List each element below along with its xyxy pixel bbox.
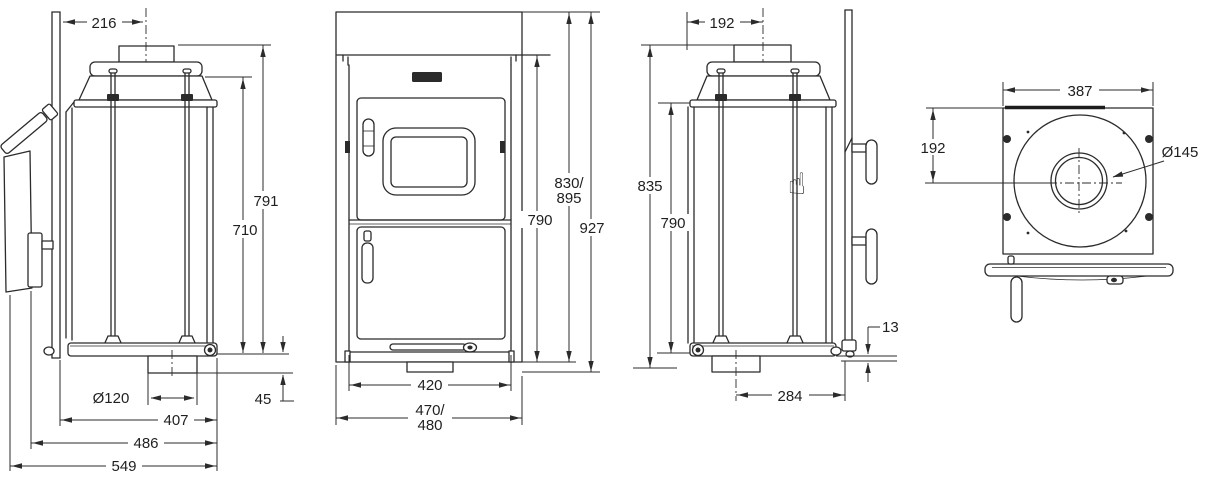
tie-rod: [712, 69, 730, 345]
top-view: 387 192: [918, 82, 1198, 322]
base-hook: [831, 347, 841, 355]
wall-panel: [842, 10, 856, 357]
dim-387: 387: [1003, 82, 1153, 106]
right-side-view: ☝: [631, 8, 899, 405]
flue-stub: [119, 46, 174, 62]
hand-cursor-icon: ☝: [788, 167, 806, 202]
door-handle-icon: [0, 103, 58, 154]
dim-420: 420: [349, 355, 511, 394]
tie-rod: [178, 69, 196, 345]
dim-o145: Ø145: [1113, 144, 1198, 177]
brand-logo: [412, 72, 442, 82]
latch-handle: [852, 140, 877, 284]
front-plate: [985, 256, 1173, 280]
dim-label: 407: [163, 412, 188, 429]
latch-icon: [1107, 276, 1123, 284]
dim-45: 45: [255, 336, 294, 408]
technical-drawing: 216 791 710 Ø120: [0, 0, 1205, 500]
drawing-canvas: 216 791 710 Ø120: [0, 0, 1205, 500]
dim-label: 790: [660, 215, 685, 232]
dim-label: 192: [920, 140, 945, 157]
dim-label: 927: [579, 220, 604, 237]
lower-door: [357, 227, 505, 339]
dim-192-top: 192: [918, 108, 1003, 183]
dim-label: 13: [882, 319, 899, 336]
dim-label: 45: [255, 391, 272, 408]
base-plate: [68, 343, 217, 356]
latch-handle: [28, 233, 53, 287]
dim-label: 480: [417, 417, 442, 434]
dim-790-side: 790: [654, 103, 691, 353]
dim-216: 216: [63, 13, 143, 32]
dim-label: Ø145: [1162, 144, 1199, 161]
dim-470-480: 470/ 480: [336, 365, 522, 434]
ledge: [74, 100, 217, 107]
tie-rod: [786, 69, 804, 345]
bolt-icon: [1003, 135, 1011, 143]
stove-body-side: [66, 102, 213, 343]
dim-192-side: 192: [687, 12, 763, 50]
pedestal: [407, 362, 453, 372]
dim-label: 284: [777, 388, 802, 405]
base-hook: [44, 347, 54, 355]
upper-door: [357, 98, 505, 220]
stove-body-side: [688, 107, 832, 343]
ledge: [690, 100, 836, 107]
dim-label: 486: [133, 435, 158, 452]
floor-outlet: [148, 356, 197, 373]
dim-label: 216: [91, 15, 116, 32]
bolt-icon: [1003, 213, 1011, 221]
dim-790-front: 790: [521, 55, 558, 362]
dim-label: 387: [1067, 83, 1092, 100]
dim-label: Ø120: [93, 390, 130, 407]
stove-body-top: [1003, 108, 1153, 254]
door-handle-icon: [1011, 277, 1022, 322]
ash-scraper: [390, 343, 477, 352]
dim-label: 420: [417, 377, 442, 394]
hinge-tab: [345, 141, 350, 153]
left-side-view: 216 791 710 Ø120: [0, 8, 294, 475]
dim-label: 710: [232, 222, 257, 239]
dim-o120: Ø120: [93, 373, 197, 407]
flue-stub: [734, 45, 791, 62]
dim-830-895: 830/ 895: [550, 12, 589, 362]
bolt-icon: [1145, 135, 1153, 143]
window: [383, 128, 475, 195]
bolt-icon: [1145, 213, 1153, 221]
dim-407: 407: [60, 358, 217, 471]
front-view: 790 830/ 895 927 420: [336, 12, 611, 434]
base-plate: [690, 343, 836, 356]
dim-label: 790: [527, 212, 552, 229]
door-handle-icon: [363, 119, 374, 156]
dim-549: 549: [10, 295, 217, 475]
dim-label: 895: [556, 190, 581, 207]
wall-panel: [52, 12, 60, 358]
dim-label: 835: [637, 178, 662, 195]
dim-label: 192: [709, 15, 734, 32]
dim-13: 13: [868, 319, 899, 382]
dim-label: 549: [111, 458, 136, 475]
dim-label: 791: [253, 193, 278, 210]
lower-latch: [362, 231, 373, 283]
latch-tab: [500, 141, 505, 153]
tie-rod: [104, 69, 122, 345]
convection-ring: [1014, 115, 1146, 247]
